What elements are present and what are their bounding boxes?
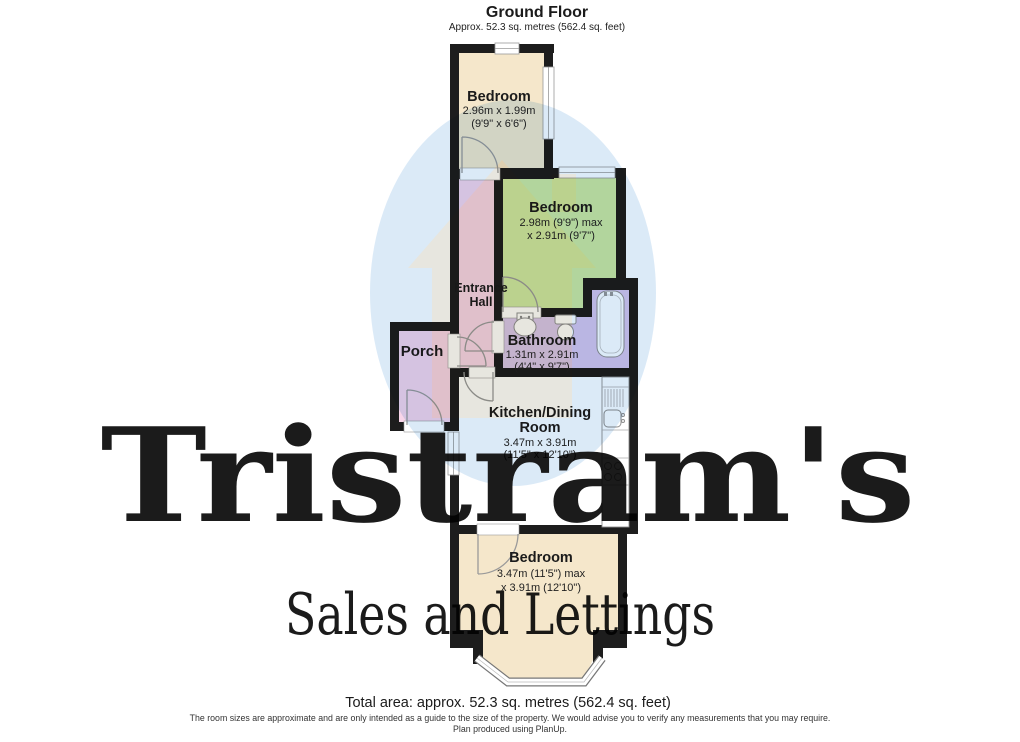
bedroom-bottom-dim-line1: 3.47m (11'5") max: [497, 568, 586, 580]
bedroom-bottom-label: Bedroom: [509, 550, 573, 566]
page-subtitle: Approx. 52.3 sq. metres (562.4 sq. feet): [449, 22, 625, 33]
floorplan-canvas: Ground Floor Approx. 52.3 sq. metres (56…: [0, 0, 1020, 742]
floorplan-page: Ground Floor Approx. 52.3 sq. metres (56…: [0, 0, 1020, 742]
wall-segment: [544, 44, 553, 68]
total-area-text: Total area: approx. 52.3 sq. metres (562…: [345, 695, 671, 711]
plan-credit-text: Plan produced using PlanUp.: [453, 724, 567, 734]
disclaimer-text: The room sizes are approximate and are o…: [190, 713, 831, 723]
page-title: Ground Floor: [486, 4, 588, 21]
watermark-tagline-text: Sales and Lettings: [285, 582, 715, 648]
watermark-brand-text: Tristram's: [101, 399, 916, 552]
